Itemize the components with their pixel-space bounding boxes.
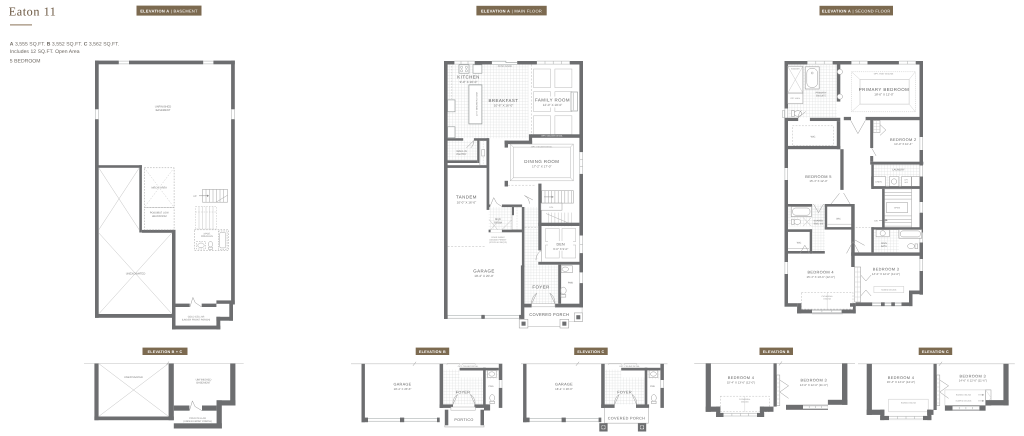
svg-text:WIC: WIC xyxy=(797,241,802,244)
svg-text:DINING ROOM: DINING ROOM xyxy=(524,159,559,164)
svg-text:GARAGE PERMIT-: GARAGE PERMIT- xyxy=(489,239,507,242)
svg-text:PWD: PWD xyxy=(568,281,574,284)
svg-text:(STEPS AS REQ'D): (STEPS AS REQ'D) xyxy=(489,241,507,244)
svg-text:UNEXCAVATED: UNEXCAVATED xyxy=(126,273,146,276)
svg-text:(UNDER FRONT PORCH): (UNDER FRONT PORCH) xyxy=(183,420,211,423)
svg-text:BASEMENT: BASEMENT xyxy=(156,109,171,112)
svg-text:RAISED CEILING: RAISED CEILING xyxy=(901,401,917,404)
svg-text:LIN.: LIN. xyxy=(549,206,553,209)
svg-text:5 BEDROOM: 5 BEDROOM xyxy=(10,59,41,65)
svg-text:BREAKFAST: BREAKFAST xyxy=(489,98,519,103)
svg-text:FOYER: FOYER xyxy=(617,390,632,394)
svg-text:OPT. AREA: OPT. AREA xyxy=(790,97,801,100)
svg-text:BEDROOM 4: BEDROOM 4 xyxy=(728,375,755,380)
svg-text:OPT. CEILING DETAIL: OPT. CEILING DETAIL xyxy=(541,135,563,138)
svg-text:BATH: BATH xyxy=(881,245,887,248)
svg-text:OPEN: OPEN xyxy=(894,207,901,210)
svg-text:RAISED CEILING: RAISED CEILING xyxy=(881,288,897,291)
svg-text:TANDEM: TANDEM xyxy=(456,195,477,200)
svg-text:SHOWER: SHOWER xyxy=(791,67,800,70)
svg-text:CEILING: CEILING xyxy=(823,298,831,301)
svg-text:15'-4" X 14'-6" (12'-0"): 15'-4" X 14'-6" (12'-0") xyxy=(887,380,915,384)
svg-text:ELEVATION A | BASEMENT: ELEVATION A | BASEMENT xyxy=(140,8,198,13)
svg-text:10'-6" X 16'-0": 10'-6" X 16'-0" xyxy=(494,104,514,108)
svg-text:18'-4" X 20'-0": 18'-4" X 20'-0" xyxy=(555,387,573,391)
svg-text:14'-6" X 12'-0" (11'-6"): 14'-6" X 12'-0" (11'-6") xyxy=(959,379,987,383)
svg-text:15'-4" X 12'-0": 15'-4" X 12'-0" xyxy=(809,179,827,183)
svg-text:ROUGH-IN: ROUGH-IN xyxy=(201,235,213,238)
svg-text:10'-0" X 10'-4": 10'-0" X 10'-4" xyxy=(894,142,912,146)
svg-text:UNEXCAVATED: UNEXCAVATED xyxy=(124,376,143,379)
svg-text:15'-4" X 13'-6" (12'-0"): 15'-4" X 13'-6" (12'-0") xyxy=(727,381,755,385)
svg-text:14'-6" X 12'-0" (11'-6"): 14'-6" X 12'-0" (11'-6") xyxy=(872,272,900,276)
svg-text:3 PCE.: 3 PCE. xyxy=(203,232,211,235)
svg-text:Eaton 11: Eaton 11 xyxy=(9,5,57,19)
svg-text:GARAGE: GARAGE xyxy=(555,382,573,386)
svg-text:ELEVATION C: ELEVATION C xyxy=(922,350,949,354)
svg-text:BEDROOM 3: BEDROOM 3 xyxy=(873,267,900,272)
svg-text:UP: UP xyxy=(193,195,197,198)
svg-text:BEDROOM 3: BEDROOM 3 xyxy=(960,373,987,378)
svg-text:18'-4" X 20'-0": 18'-4" X 20'-0" xyxy=(394,387,412,391)
svg-text:SLOPED CEILING: SLOPED CEILING xyxy=(956,400,972,403)
svg-text:9'-0" X 16'-0": 9'-0" X 16'-0" xyxy=(460,80,478,84)
svg-text:12'-0" X 18'-0": 12'-0" X 18'-0" xyxy=(543,103,563,107)
svg-text:GARAGE: GARAGE xyxy=(473,268,495,273)
svg-text:BEDROOM 4: BEDROOM 4 xyxy=(807,270,834,275)
svg-text:18'-6" X 13'-0": 18'-6" X 13'-0" xyxy=(874,93,894,97)
svg-text:PWD: PWD xyxy=(650,385,656,388)
svg-text:BEDROOM 4: BEDROOM 4 xyxy=(888,375,915,380)
svg-text:SHARED: SHARED xyxy=(814,220,824,223)
svg-text:14'-0" X 12'-0" (11'-0"): 14'-0" X 12'-0" (11'-0") xyxy=(800,383,828,387)
svg-text:DOOR SWING: DOOR SWING xyxy=(491,236,505,239)
svg-text:PATIO DOOR: PATIO DOOR xyxy=(498,65,512,68)
svg-text:HEADROOM: HEADROOM xyxy=(152,215,167,218)
svg-text:OPT. CEILING DETAIL: OPT. CEILING DETAIL xyxy=(531,146,553,149)
svg-text:15'-4" X 13'-6" (12'-0"): 15'-4" X 13'-6" (12'-0") xyxy=(807,275,835,279)
svg-text:Includes 12 SQ.FT. Open Area: Includes 12 SQ.FT. Open Area xyxy=(10,49,80,55)
svg-text:ENS. 4/5: ENS. 4/5 xyxy=(814,223,824,226)
svg-text:BEDROOM 5: BEDROOM 5 xyxy=(805,174,832,179)
svg-text:10'-0" BREAKFAST BAR: 10'-0" BREAKFAST BAR xyxy=(476,92,479,117)
svg-text:COVERED PORCH: COVERED PORCH xyxy=(529,312,569,317)
svg-text:ELEVATION A | MAIN FLOOR: ELEVATION A | MAIN FLOOR xyxy=(481,8,542,13)
svg-text:DN: DN xyxy=(874,219,878,222)
svg-text:ELEVATION B: ELEVATION B xyxy=(419,350,446,354)
svg-text:FOYER: FOYER xyxy=(532,285,549,290)
svg-text:BEDROOM 3: BEDROOM 3 xyxy=(801,378,828,383)
svg-text:PWD: PWD xyxy=(488,385,494,388)
svg-text:ELEVATION C: ELEVATION C xyxy=(577,350,604,354)
svg-text:WIC: WIC xyxy=(811,136,816,139)
svg-text:PORTICO: PORTICO xyxy=(454,418,473,422)
svg-text:18'-4" X 20'-0": 18'-4" X 20'-0" xyxy=(474,274,494,278)
svg-text:PRIMARY BEDROOM: PRIMARY BEDROOM xyxy=(859,87,910,92)
svg-text:FOYER: FOYER xyxy=(456,390,471,394)
svg-text:OPT. CEILING DETAIL: OPT. CEILING DETAIL xyxy=(458,365,479,368)
svg-text:MAIN: MAIN xyxy=(881,242,887,245)
svg-text:ROOM: ROOM xyxy=(494,221,502,224)
svg-text:WIC: WIC xyxy=(836,217,841,220)
svg-text:ELEVATION A | SECOND FLOOR: ELEVATION A | SECOND FLOOR xyxy=(822,8,891,13)
svg-text:MECH. AREA: MECH. AREA xyxy=(151,186,167,189)
svg-text:10'-0" X 16'-0": 10'-0" X 16'-0" xyxy=(457,200,477,204)
svg-text:ENSUITE: ENSUITE xyxy=(816,94,827,97)
svg-text:LINEN: LINEN xyxy=(875,180,882,183)
svg-text:GARAGE: GARAGE xyxy=(393,382,411,386)
svg-text:ELEVATION B + C: ELEVATION B + C xyxy=(148,350,183,354)
svg-text:ELEVATION B: ELEVATION B xyxy=(763,350,790,354)
svg-text:OPT. CEILING DETAIL: OPT. CEILING DETAIL xyxy=(619,365,640,368)
svg-text:LAUNDRY: LAUNDRY xyxy=(892,168,905,171)
svg-text:KITCHEN: KITCHEN xyxy=(457,74,479,79)
svg-text:(UNDER FRONT PORCH): (UNDER FRONT PORCH) xyxy=(182,318,210,321)
svg-text:BASEMENT: BASEMENT xyxy=(196,382,211,385)
svg-text:9'-0" X 9'-0": 9'-0" X 9'-0" xyxy=(553,247,568,251)
svg-text:OPT. TRAY CEILING: OPT. TRAY CEILING xyxy=(874,73,894,76)
svg-text:A 3,555 SQ.FT. B 3,552 SQ.FT.: A 3,555 SQ.FT. B 3,552 SQ.FT. C 3,562 SQ… xyxy=(10,42,119,48)
svg-text:PANTRY: PANTRY xyxy=(457,153,467,156)
svg-text:17'-2" X 17'-0": 17'-2" X 17'-0" xyxy=(532,165,552,169)
svg-text:COVERED PORCH: COVERED PORCH xyxy=(608,416,645,420)
svg-text:RAISED CEILING: RAISED CEILING xyxy=(956,394,972,397)
svg-text:CEILING: CEILING xyxy=(741,400,749,403)
svg-text:FAMILY ROOM: FAMILY ROOM xyxy=(535,98,570,103)
